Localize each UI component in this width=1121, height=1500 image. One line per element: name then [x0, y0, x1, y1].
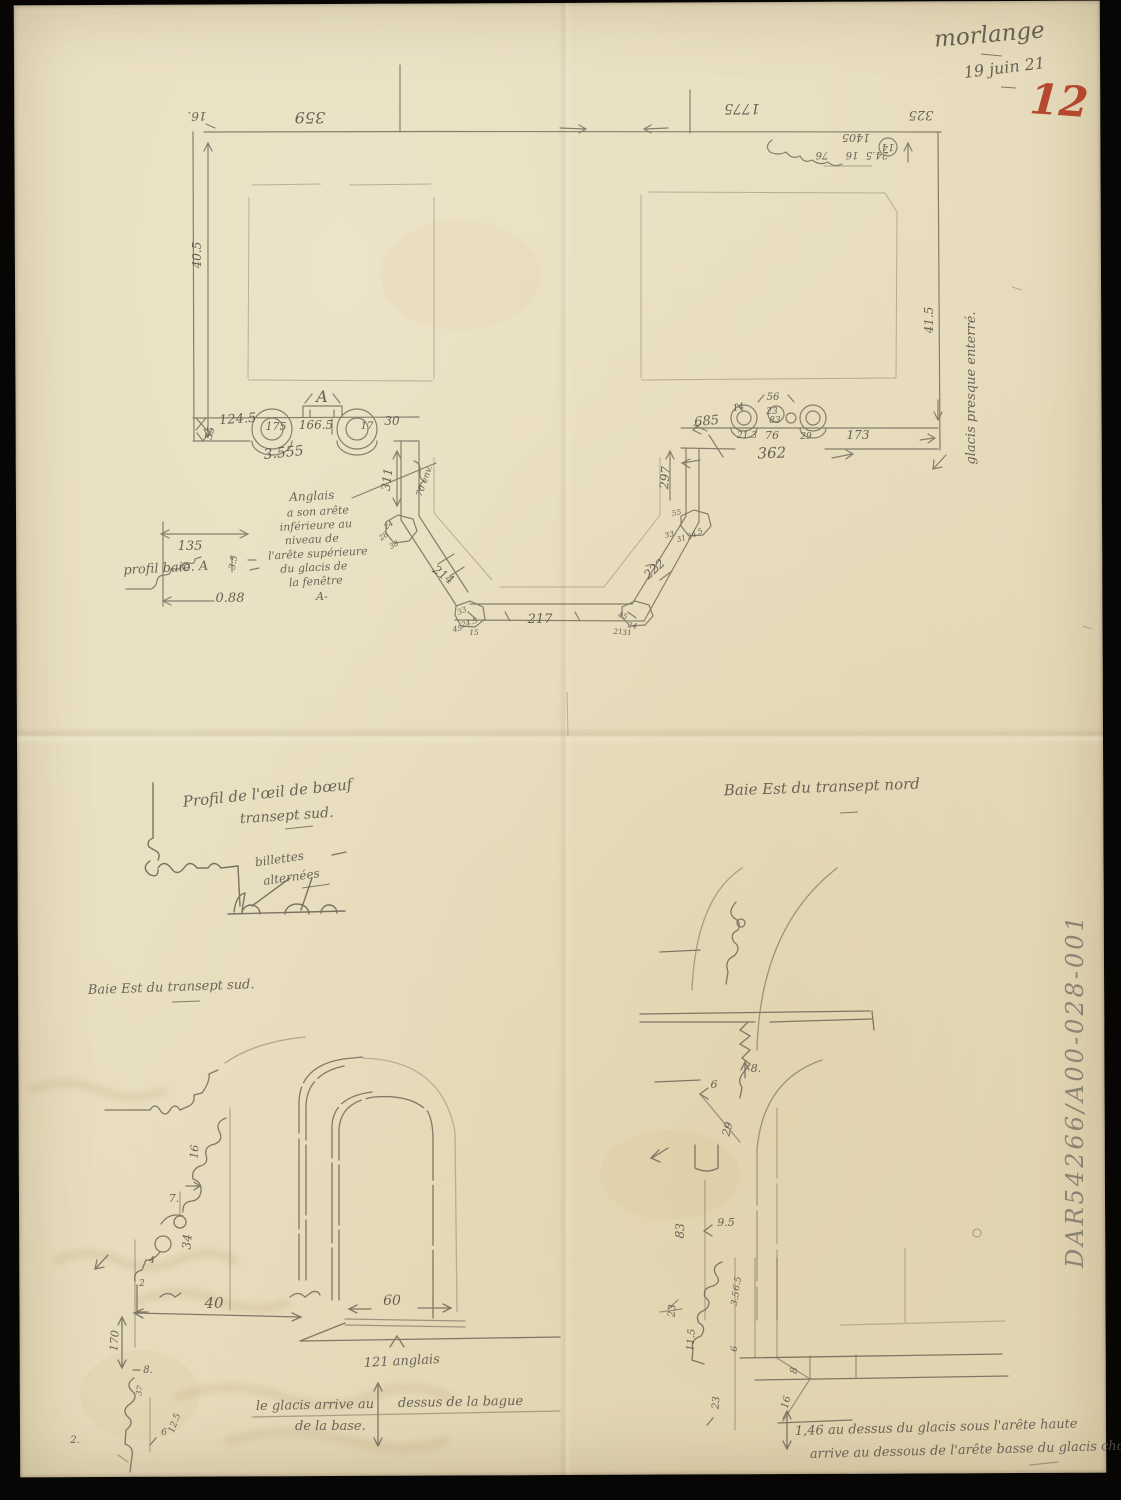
dim: 3.5 [228, 554, 240, 570]
dim: 83 [769, 416, 781, 426]
dim: 21.3 [736, 431, 757, 441]
dim: 37 [134, 1384, 145, 1396]
dim: 6.5 [732, 1275, 744, 1291]
dim: 3.5 [730, 1290, 742, 1306]
dim: 24.5 [685, 526, 705, 542]
note-glacis: de la base. [295, 1419, 366, 1434]
note-glacis: le glacis arrive au [256, 1397, 374, 1414]
note-anglais: A- [315, 590, 328, 603]
dim: 2 [138, 1279, 145, 1289]
note-anglais: Anglais [288, 488, 335, 504]
dim: 33 [664, 529, 676, 540]
dim: 29 [799, 432, 812, 442]
dim: 15 [469, 628, 479, 637]
dim: 6 [711, 1078, 718, 1091]
dim: 1405 [842, 131, 870, 144]
dim: 40.5 [190, 242, 204, 270]
dim: 40 [203, 1294, 224, 1312]
dim: 8. [751, 1062, 762, 1075]
dim: 14 [882, 141, 895, 152]
dim: 33 [456, 605, 469, 617]
labels: morlange 19 juin 21 12 DAR54266/A00-028-… [69, 17, 1121, 1462]
place-title: morlange [933, 17, 1046, 53]
dim: 16. [187, 109, 206, 123]
dim: 30 [384, 414, 400, 428]
dim: 4 [148, 1256, 155, 1266]
dim: 135 [178, 539, 203, 554]
dim: 31 [622, 628, 632, 637]
dim: 170 [107, 1330, 122, 1352]
dim: 297 [657, 465, 673, 490]
dim: 17 [361, 421, 374, 432]
dim: 685 [694, 413, 720, 430]
dim: 83 [673, 1222, 688, 1238]
dim-121-anglais: 121 anglais [363, 1352, 440, 1371]
dim: 166.5 [299, 418, 333, 432]
note-buried-glacis: glacis presque enterré. [964, 311, 979, 464]
baie-nord-drawing [640, 868, 1058, 1465]
dim: 34 [179, 1233, 194, 1249]
dim: 217 [527, 612, 554, 627]
note-anglais: la fenêtre [289, 574, 344, 590]
archive-code: DAR54266/A00-028-001 [1061, 913, 1089, 1269]
dim: 6 [730, 1345, 740, 1352]
dim: 76 [765, 429, 779, 442]
dim: 214 [429, 562, 457, 587]
dim: 45 [451, 623, 463, 634]
note-146: arrive au dessous de l'arête basse du gl… [810, 1438, 1121, 1462]
dim: 222 [640, 556, 667, 582]
dim: 45 [616, 610, 629, 622]
dim: 8. [143, 1365, 153, 1376]
section-title: Baie Est du transept sud. [87, 977, 255, 998]
dim: 29 [719, 1121, 735, 1139]
folio-number: 12 [1028, 74, 1090, 127]
billettes-label: alternées [262, 866, 320, 888]
dim: 175 [266, 420, 287, 433]
dim: 3.555 [263, 443, 305, 463]
dim: 124.5 [219, 411, 257, 429]
dim: 70 env. [415, 464, 435, 498]
profil-baie-label: profil baie. A [123, 559, 209, 578]
ink-bleedthrough [30, 1083, 451, 1448]
pencil-drawing: morlange 19 juin 21 12 DAR54266/A00-028-… [0, 0, 1121, 1500]
dim: 55 [204, 426, 218, 441]
dim: 6 [161, 1428, 167, 1438]
dim: 11.5 [685, 1328, 698, 1351]
dim: 23 [666, 1304, 678, 1319]
dim: 21 [612, 627, 623, 636]
dim: 362 [757, 444, 786, 463]
dim: 1775 [724, 100, 760, 116]
note-anglais: inférieure au [279, 517, 352, 534]
dim: 7. [169, 1192, 180, 1205]
dim: 173 [847, 428, 870, 442]
dim: 14 [732, 402, 746, 414]
dim: 2. [69, 1435, 80, 1446]
dim: 9.5 [717, 1216, 735, 1229]
section-title: Baie Est du transept nord [723, 775, 921, 800]
dim: 0.88 [216, 591, 245, 606]
dim: 16 [845, 149, 858, 160]
dim: 38 [387, 538, 400, 551]
dim: 23 [710, 1396, 722, 1411]
dim: 311 [379, 467, 396, 491]
dim: 55 [671, 507, 682, 518]
dim: 359 [295, 108, 326, 127]
dim: 28 [376, 529, 390, 543]
dim: 8 [789, 1366, 801, 1374]
note-glacis: dessus de la bague [398, 1394, 524, 1411]
dim: 41.5 [922, 307, 936, 335]
dim: 325 [909, 107, 934, 122]
scanned-sheet: morlange 19 juin 21 12 DAR54266/A00-028-… [0, 0, 1121, 1500]
dim: 76 [815, 149, 828, 160]
dim: 16 [187, 1144, 201, 1159]
dim: 60 [383, 1293, 401, 1309]
note-anglais: niveau de [284, 532, 339, 548]
dim: 12.5 [167, 1412, 183, 1435]
dim: 56 [767, 392, 780, 403]
window-label: A [314, 387, 328, 406]
section-title: transept sud. [239, 805, 334, 828]
billettes-label: billettes [254, 849, 305, 870]
